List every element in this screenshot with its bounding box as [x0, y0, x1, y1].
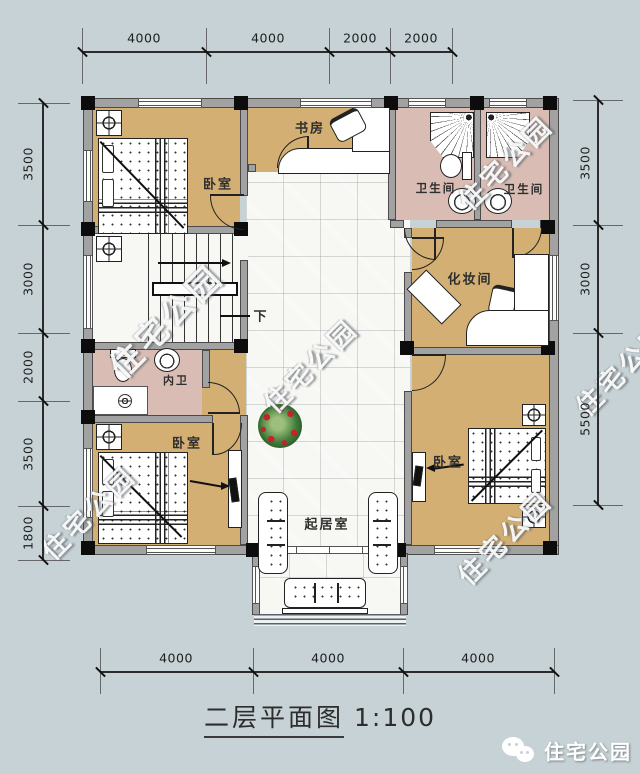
- wechat-eye: [508, 743, 511, 746]
- wechat-eye: [526, 751, 529, 754]
- dimension-label: 4000: [127, 31, 161, 46]
- extension-line: [329, 28, 330, 84]
- window: [408, 98, 446, 108]
- cushion: [267, 497, 285, 569]
- floor-plan-canvas: 下: [0, 0, 640, 774]
- column: [81, 541, 95, 555]
- extension-line: [390, 28, 391, 84]
- room-label-bath-left: 卫生间: [416, 180, 457, 196]
- dimension-label: 4000: [159, 651, 193, 666]
- cushion: [291, 583, 361, 603]
- wall-segment: [248, 164, 256, 172]
- wall-segment: [404, 391, 412, 545]
- stair-label-leader: [220, 315, 250, 317]
- room-label-bedroom-br: 卧室: [433, 452, 463, 471]
- window: [489, 98, 527, 108]
- wechat-eye: [515, 743, 518, 746]
- pillow: [102, 179, 114, 207]
- room-label-bedroom-tl: 卧室: [203, 174, 233, 193]
- nightstand: [96, 424, 122, 450]
- column: [543, 96, 557, 110]
- dimension-label: 4000: [461, 651, 495, 666]
- dimension-label: 2000: [21, 350, 36, 384]
- bed-stripe: [485, 429, 497, 503]
- dimension-label: 3000: [578, 262, 593, 296]
- wall-segment: [240, 260, 248, 342]
- dimension-line: [100, 671, 555, 673]
- wall-segment: [83, 415, 213, 423]
- wechat-icon: [502, 735, 536, 765]
- dimension-label: 3500: [21, 437, 36, 471]
- column: [543, 541, 557, 555]
- wall-segment: [549, 98, 559, 555]
- nightstand: [96, 236, 122, 262]
- column: [400, 341, 414, 355]
- dimension-label: 1800: [21, 516, 36, 550]
- cushion: [373, 497, 391, 569]
- extension-line: [452, 28, 453, 84]
- dimension-label: 4000: [251, 31, 285, 46]
- wall-segment: [240, 108, 248, 196]
- armchair: [368, 492, 398, 574]
- column: [81, 222, 95, 236]
- counter: [466, 310, 549, 346]
- window: [549, 255, 559, 321]
- plan-title-scale: 1:100: [354, 703, 436, 732]
- column: [234, 96, 248, 110]
- cushion-divider: [373, 544, 391, 546]
- door-leaf: [412, 354, 446, 356]
- wall-segment: [436, 220, 512, 228]
- column: [470, 96, 484, 110]
- extension-line: [206, 28, 207, 84]
- nightstand: [96, 110, 122, 136]
- column: [541, 220, 555, 234]
- dimension-label: 3500: [578, 146, 593, 180]
- room-label-living: 起居室: [304, 514, 349, 533]
- cushion-divider: [267, 544, 285, 546]
- stair-down-label: 下: [253, 306, 268, 325]
- column: [81, 410, 95, 424]
- door-leaf: [212, 423, 214, 455]
- door-leaf: [208, 412, 240, 414]
- arrowhead-icon: [222, 259, 231, 267]
- brand-label: 住宅公园: [544, 736, 632, 765]
- counter: [514, 254, 549, 312]
- window: [83, 150, 93, 202]
- cushion-divider: [373, 520, 391, 522]
- dimension-label: 2000: [404, 31, 438, 46]
- dimension-label: 3500: [21, 147, 36, 181]
- bed-symbol: [98, 138, 188, 234]
- bed-stripe: [155, 453, 169, 543]
- room-label-dressing: 化妆间: [447, 269, 492, 288]
- dimension-label: 5500: [578, 402, 593, 436]
- extension-line: [82, 28, 83, 84]
- sofa-base: [282, 608, 368, 614]
- sofa: [284, 578, 366, 608]
- door-leaf: [210, 194, 244, 196]
- room-label-bath-right: 卫生间: [504, 181, 545, 197]
- window: [400, 566, 408, 604]
- dimension-line: [597, 100, 599, 506]
- wall-segment: [390, 220, 404, 228]
- shower-drain-icon: [118, 394, 132, 408]
- wechat-bubble: [516, 746, 534, 762]
- room-label-bedroom-bl: 卧室: [172, 433, 202, 452]
- door-leaf: [412, 237, 444, 239]
- bed-stripe: [155, 139, 169, 233]
- cushion-divider: [267, 520, 285, 522]
- brand-logo: 住宅公园: [502, 728, 637, 772]
- window: [138, 98, 202, 108]
- room-label-study: 书房: [295, 118, 325, 137]
- arrowhead-icon: [221, 482, 230, 490]
- window: [146, 545, 216, 555]
- column: [81, 339, 95, 353]
- window: [300, 98, 372, 108]
- wechat-eye: [520, 751, 523, 754]
- room-label-inner-bath: 内卫: [163, 372, 189, 388]
- balcony-railing: [254, 614, 406, 626]
- nightstand: [522, 404, 546, 426]
- window: [83, 255, 93, 329]
- dimension-label: 4000: [311, 651, 345, 666]
- dimension-label: 3000: [21, 262, 36, 296]
- cushion-divider: [314, 583, 316, 603]
- window: [252, 566, 260, 604]
- toilet-bowl: [440, 154, 462, 178]
- armchair: [258, 492, 288, 574]
- dimension-line: [82, 51, 453, 53]
- dimension-label: 2000: [343, 31, 377, 46]
- column: [81, 96, 95, 110]
- plan-title-text: 二层平面图: [204, 703, 344, 738]
- cushion-divider: [337, 583, 339, 603]
